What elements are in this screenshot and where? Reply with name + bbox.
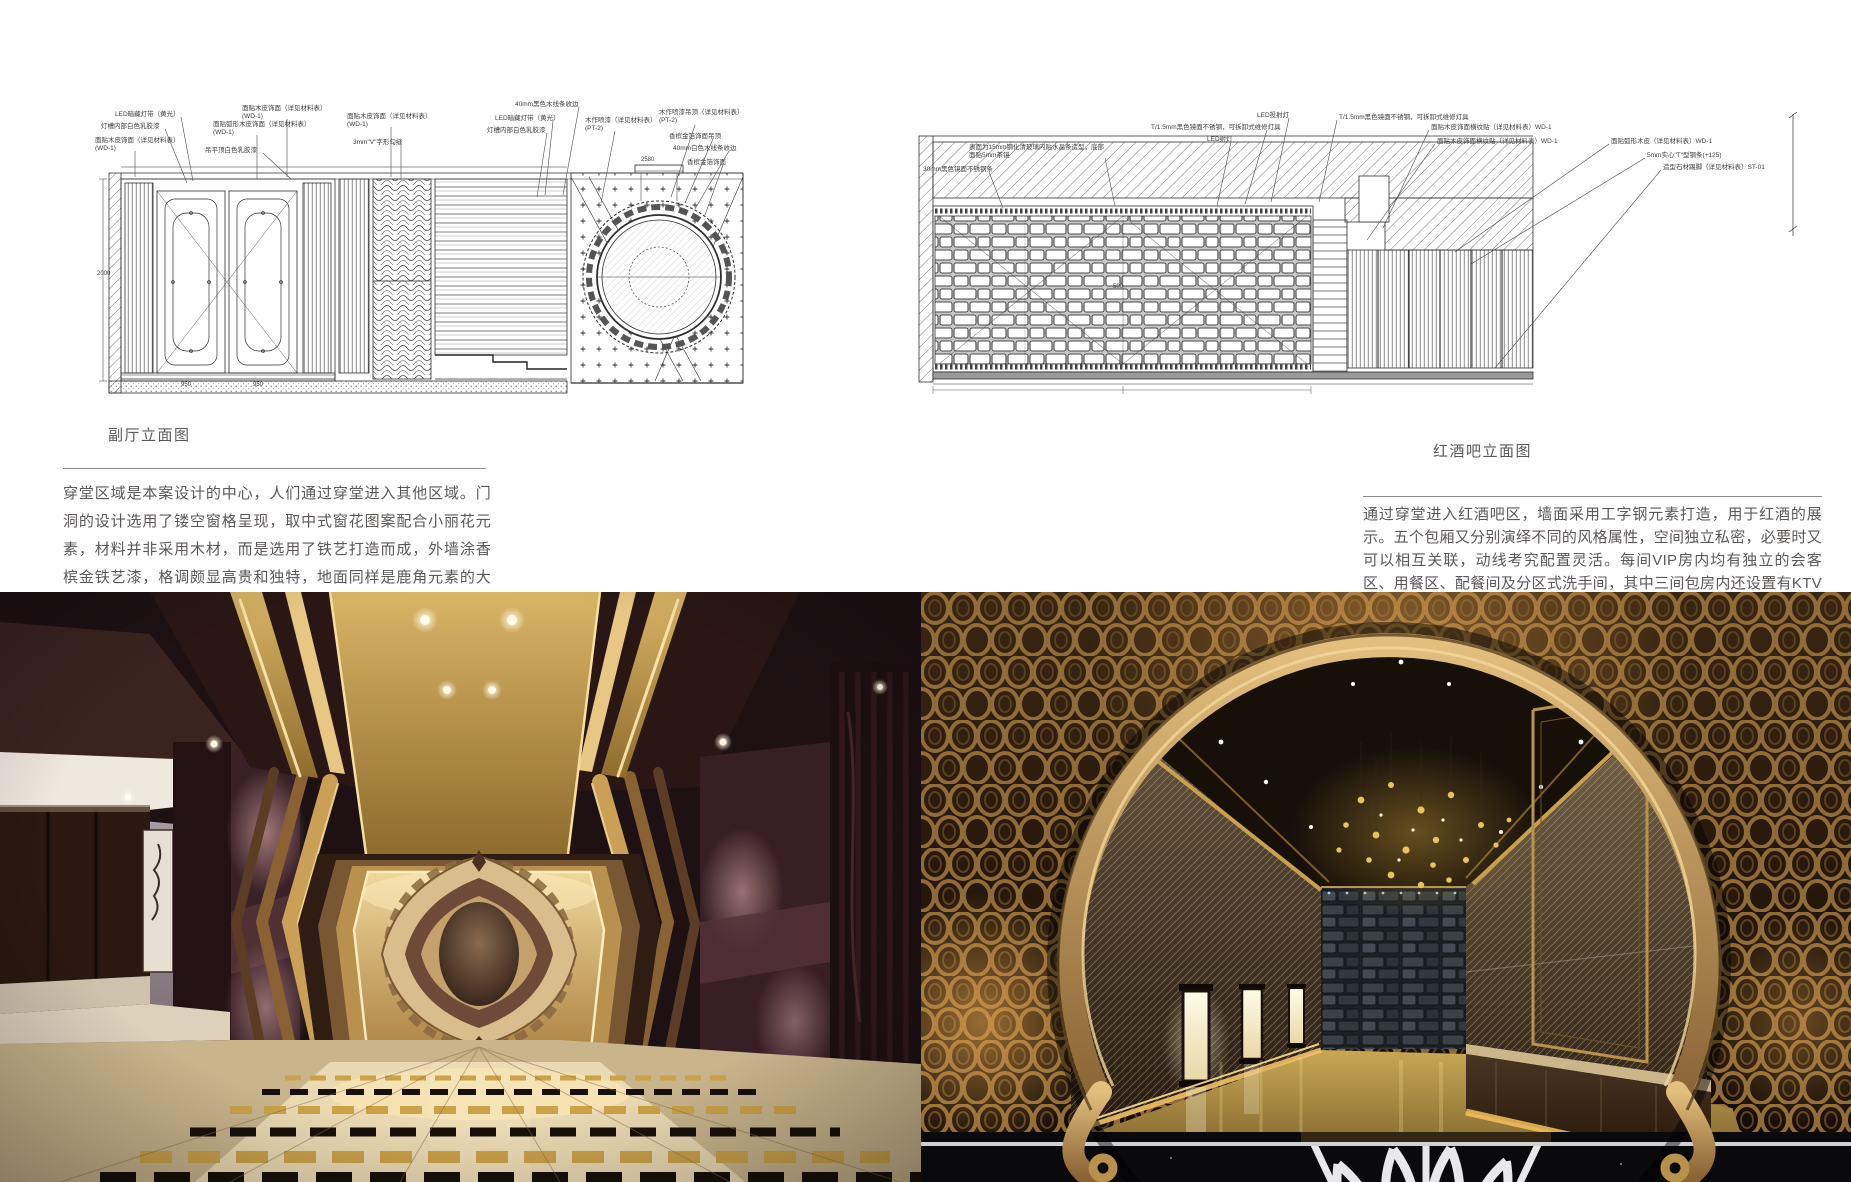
- slat-panel: [339, 179, 369, 373]
- drawing-annotation: 面贴木皮饰面（详见材料表） (WD-1): [242, 105, 327, 120]
- drawing-annotation: T/1.5mm黑色镜面不锈钢，可拆卸式维修灯具: [1151, 124, 1281, 132]
- drawing-annotation: 香槟金箔饰面: [687, 159, 726, 167]
- drawing-annotation: 3mm"V"字形勾缝: [353, 139, 402, 147]
- drawing-annotation: 面贴木皮饰面（详见材料表） (WD-1): [95, 137, 180, 152]
- book-page: LED暗藏灯带（黄光）灯槽内部白色乳胶漆面贴木皮饰面（详见材料表） (WD-1)…: [0, 0, 1851, 1182]
- drawing-annotation: 面贴木皮饰面横纹贴（详见材料表）WD-1: [1437, 138, 1558, 146]
- side-hall-elevation-linework: [95, 85, 745, 415]
- wine-bar-photo-art: [921, 592, 1851, 1182]
- drawing-annotation: 表面为15mm钢化清玻璃内贴水晶条造型，底部 面贴5mm茶镜: [969, 144, 1104, 159]
- wall-section-edge: [109, 173, 121, 393]
- vertical-panel-wall: [1347, 250, 1533, 368]
- drawing-annotation: LED暗藏灯带（黄光）: [115, 111, 180, 119]
- drawing-annotation: 木作喷漆吊顶（详见材料表） (PT-2): [659, 109, 744, 124]
- dimension-text: 950: [181, 382, 191, 388]
- drawing-annotation: 香槟金箔饰面吊顶: [669, 133, 721, 141]
- drawing-annotation: 面贴木皮饰面（详见材料表） (WD-1): [347, 113, 432, 128]
- drawing-annotation: 木作喷漆（详见材料表） (PT-2): [585, 117, 657, 132]
- drawing-annotation: T/1.5mm黑色镜面不锈钢，可拆卸式维修灯具: [1339, 114, 1469, 122]
- dimension-text: 950: [253, 382, 263, 388]
- dimension-text: 2000: [97, 271, 110, 277]
- vignette: [0, 592, 921, 1182]
- drawing-annotation: 面贴弧形木皮（详见材料表）WD-1: [1611, 138, 1712, 146]
- plank-panel: [435, 179, 567, 379]
- ornate-double-door: [121, 179, 335, 381]
- skirting-base: [933, 372, 1533, 394]
- wine-bar-elevation-linework: [915, 80, 1835, 455]
- drawing-caption-right: 红酒吧立面图: [1433, 440, 1532, 461]
- drawing-annotation: 40mm白色木线条收边: [673, 145, 737, 153]
- corridor-photo-art: [0, 592, 921, 1182]
- floor-base: [109, 381, 567, 393]
- photo-wine-bar-arch: [921, 592, 1851, 1182]
- drawing-caption-left: 副厅立面图: [108, 424, 191, 445]
- separator-line-right: [1363, 496, 1822, 497]
- drawing-annotation: 造型石材踢脚（详见材料表）ST-01: [1663, 164, 1765, 172]
- elevation-drawing-side-hall: LED暗藏灯带（黄光）灯槽内部白色乳胶漆面贴木皮饰面（详见材料表） (WD-1)…: [95, 85, 745, 415]
- drawing-annotation: LED暗藏灯带（黄光）: [495, 115, 560, 123]
- drawing-annotation: 5mm实心"T"型钢条(+125): [1647, 152, 1722, 160]
- dimension-extension-line: [1789, 112, 1797, 236]
- shelf-column: [1313, 220, 1347, 372]
- drawing-annotation: 30mm黑色镜面不锈钢条: [923, 166, 993, 174]
- drawing-annotation: 40mm黑色木线条收边: [515, 101, 579, 109]
- drawing-annotation: 面贴木皮饰面横纹贴（详见材料表）WD-1: [1431, 124, 1552, 132]
- drawing-annotation: 吊平顶白色乳胶漆: [205, 147, 257, 155]
- drawing-annotation: LED射灯: [1207, 136, 1233, 144]
- dimension-text: 2580: [641, 157, 654, 163]
- drawing-annotation: 灯槽内部白色乳胶漆: [487, 127, 546, 135]
- separator-line-left: [63, 468, 486, 469]
- drawing-annotation: 面贴弧形木皮饰面（详见材料表） (WD-1): [213, 121, 311, 136]
- drawing-annotation: LED投射灯: [1257, 112, 1289, 120]
- drawing-annotation: 灯槽内部白色乳胶漆: [101, 123, 160, 131]
- photo-corridor-portal: [0, 592, 921, 1182]
- wavy-wood-panel: [373, 179, 431, 379]
- dimension-text: 500: [1113, 284, 1123, 290]
- elevation-drawing-wine-bar: 30mm黑色镜面不锈钢条表面为15mm钢化清玻璃内贴水晶条造型，底部 面贴5mm…: [915, 80, 1835, 455]
